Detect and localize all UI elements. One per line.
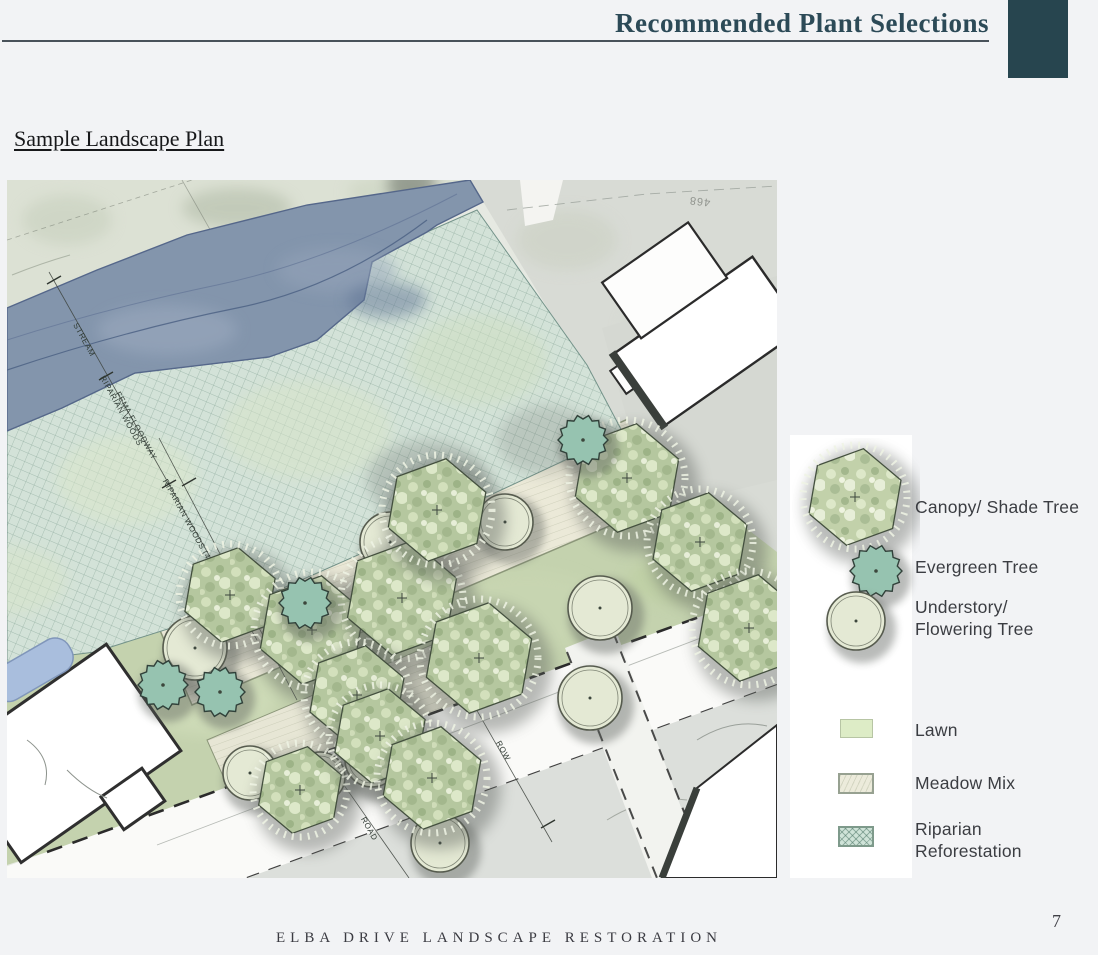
meadow-mix-swatch	[838, 773, 874, 794]
riparian-reforestation-swatch	[838, 826, 874, 847]
legend-label-canopy: Canopy/ Shade Tree	[915, 496, 1079, 518]
lawn-swatch	[840, 719, 873, 738]
legend-label-riparian: Riparian Reforestation	[915, 818, 1022, 862]
header-accent-block	[1008, 0, 1068, 78]
page-number: 7	[1052, 911, 1061, 932]
footer-title: ELBA DRIVE LANDSCAPE RESTORATION	[0, 930, 998, 947]
legend-label-lawn: Lawn	[915, 719, 958, 741]
landscape-plan-drawing: 468 STREAM RIPARIAN WOODS FEMA FLOODWAY …	[7, 180, 777, 878]
legend-tree-symbols	[792, 438, 920, 678]
legend-label-meadow: Meadow Mix	[915, 772, 1015, 794]
page-title: Recommended Plant Selections	[615, 8, 989, 39]
legend-canopy-tree-symbol	[803, 445, 920, 564]
header-rule	[2, 40, 989, 42]
section-title: Sample Landscape Plan	[14, 126, 224, 152]
legend-label-evergreen: Evergreen Tree	[915, 556, 1038, 578]
legend-label-understory: Understory/ Flowering Tree	[915, 596, 1034, 640]
landscape-plan-map: 468 STREAM RIPARIAN WOODS FEMA FLOODWAY …	[7, 180, 777, 878]
